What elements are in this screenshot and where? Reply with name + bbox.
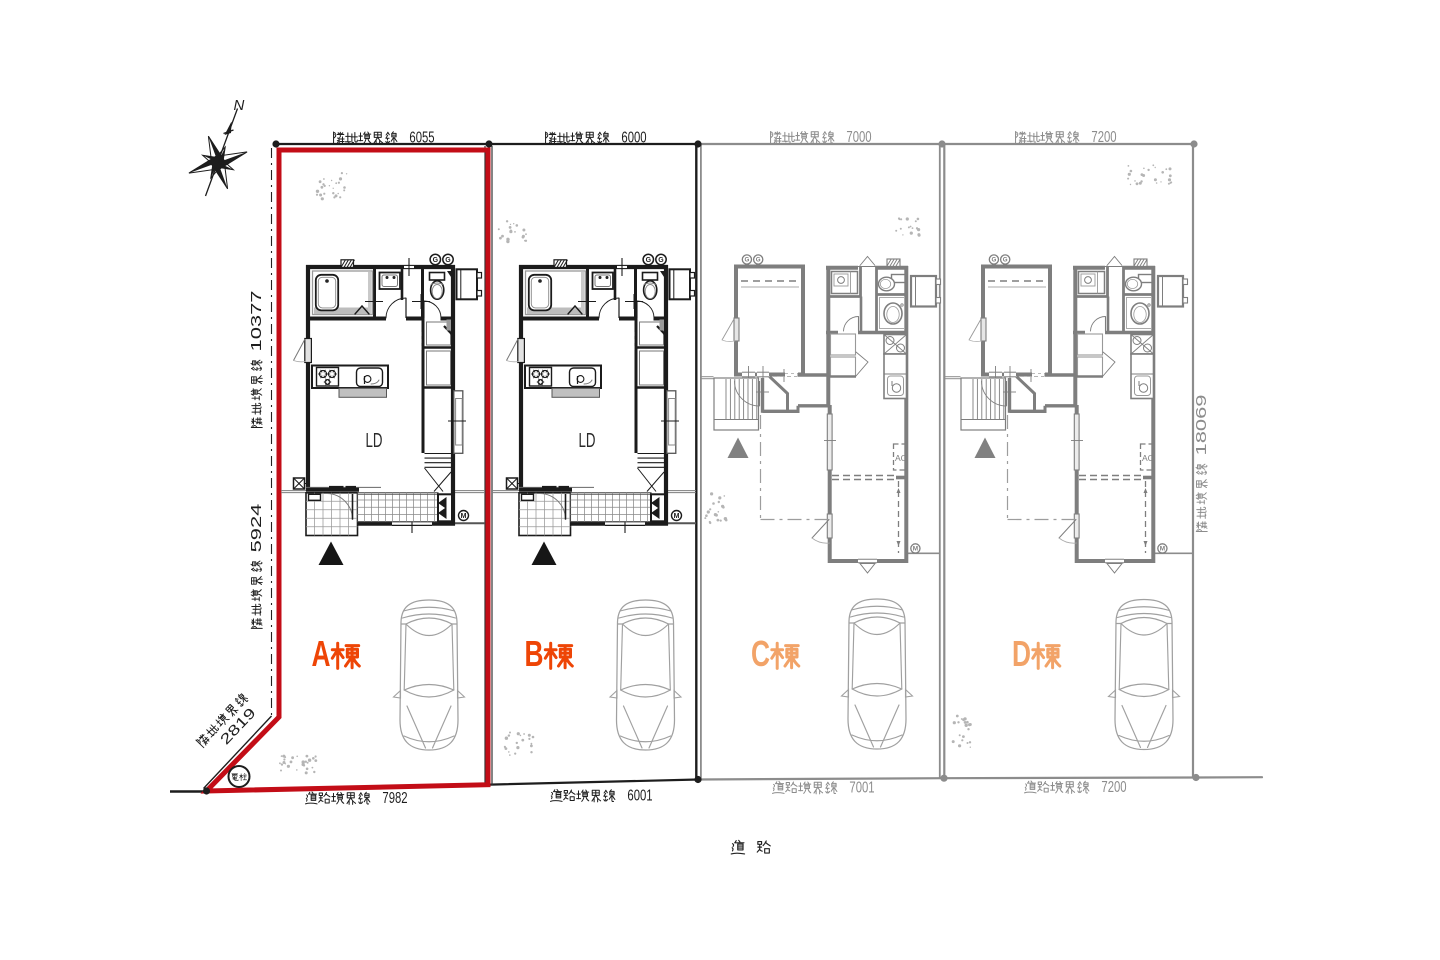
svg-text:G: G — [646, 257, 652, 264]
svg-text:N: N — [234, 97, 245, 114]
svg-text:G: G — [991, 257, 996, 264]
svg-text:M: M — [1160, 546, 1165, 553]
svg-text:7200: 7200 — [1101, 779, 1126, 796]
svg-text:B: B — [525, 633, 544, 674]
svg-text:LD: LD — [366, 430, 383, 452]
svg-text:18069: 18069 — [1194, 395, 1210, 456]
svg-text:G: G — [756, 257, 761, 264]
svg-text:C: C — [751, 633, 770, 674]
svg-text:G: G — [744, 257, 749, 264]
svg-text:6055: 6055 — [409, 130, 434, 147]
svg-text:7001: 7001 — [849, 780, 874, 797]
svg-text:6000: 6000 — [621, 130, 646, 147]
svg-text:AC: AC — [1142, 453, 1154, 463]
svg-text:LD: LD — [579, 430, 596, 452]
svg-text:A: A — [312, 633, 331, 674]
svg-text:AC: AC — [895, 453, 907, 463]
svg-text:10377: 10377 — [249, 291, 265, 352]
svg-text:D: D — [1012, 633, 1031, 674]
svg-text:G: G — [1003, 257, 1008, 264]
svg-text:7982: 7982 — [382, 790, 407, 807]
svg-text:7200: 7200 — [1091, 129, 1116, 146]
svg-text:M: M — [461, 513, 467, 520]
svg-text:G: G — [433, 257, 439, 264]
svg-text:G: G — [445, 257, 451, 264]
svg-text:M: M — [674, 513, 680, 520]
svg-text:5924: 5924 — [249, 504, 265, 553]
svg-text:6001: 6001 — [627, 788, 652, 805]
svg-text:M: M — [913, 546, 918, 553]
svg-text:G: G — [658, 257, 664, 264]
svg-text:7000: 7000 — [846, 129, 871, 146]
